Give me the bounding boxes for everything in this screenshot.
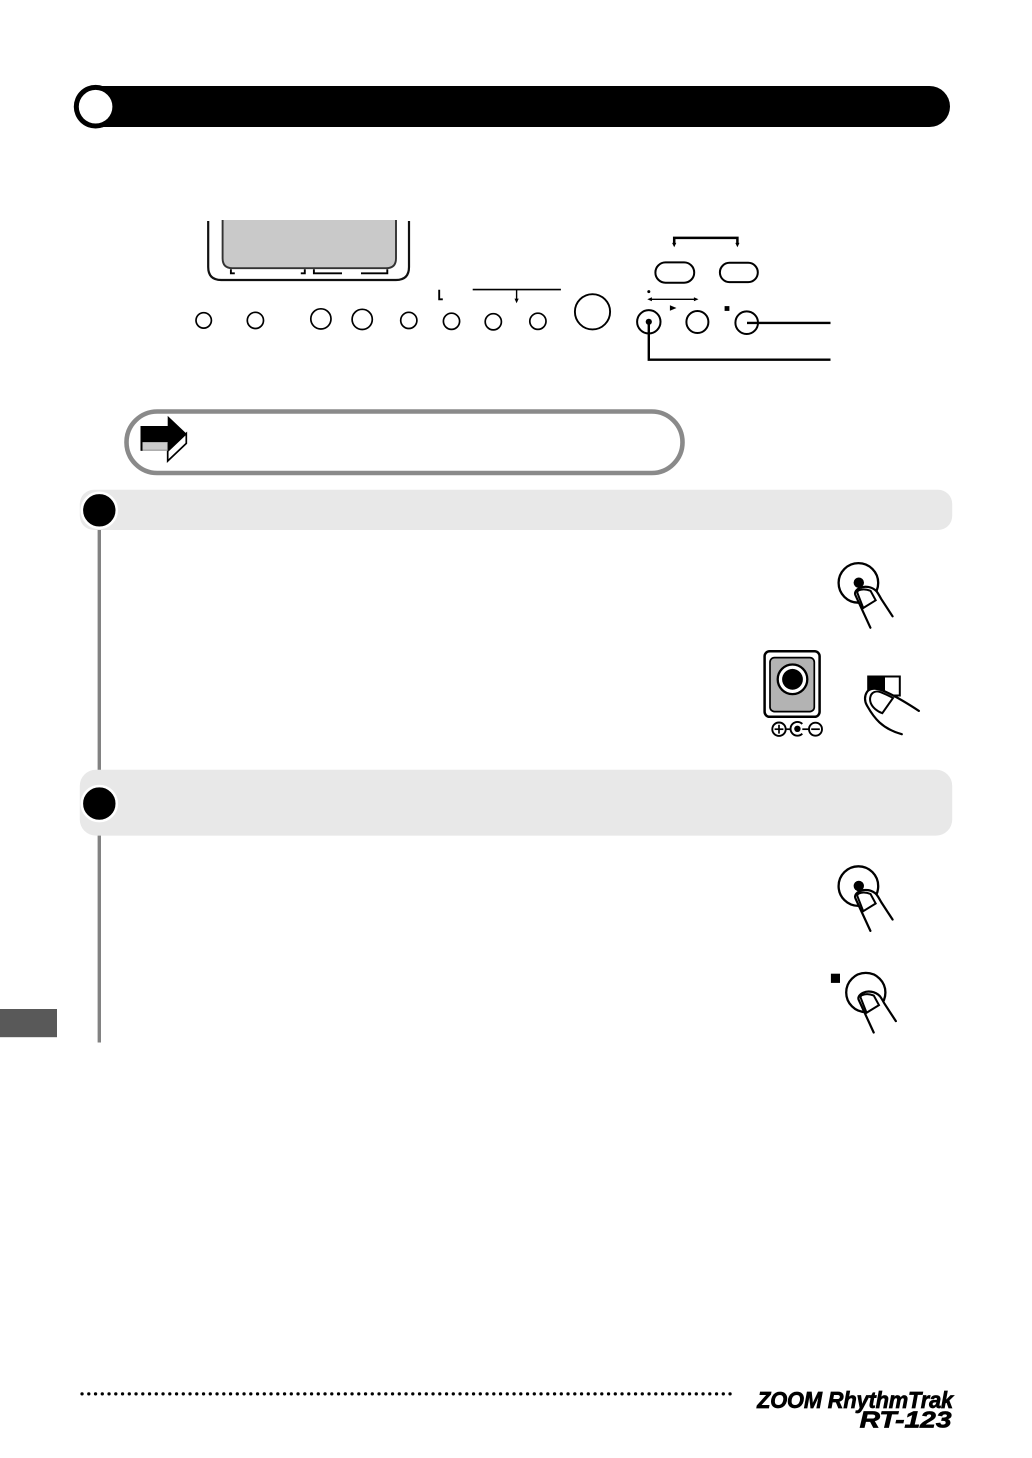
svg-text:RT-123: RT-123 [860, 1407, 953, 1432]
